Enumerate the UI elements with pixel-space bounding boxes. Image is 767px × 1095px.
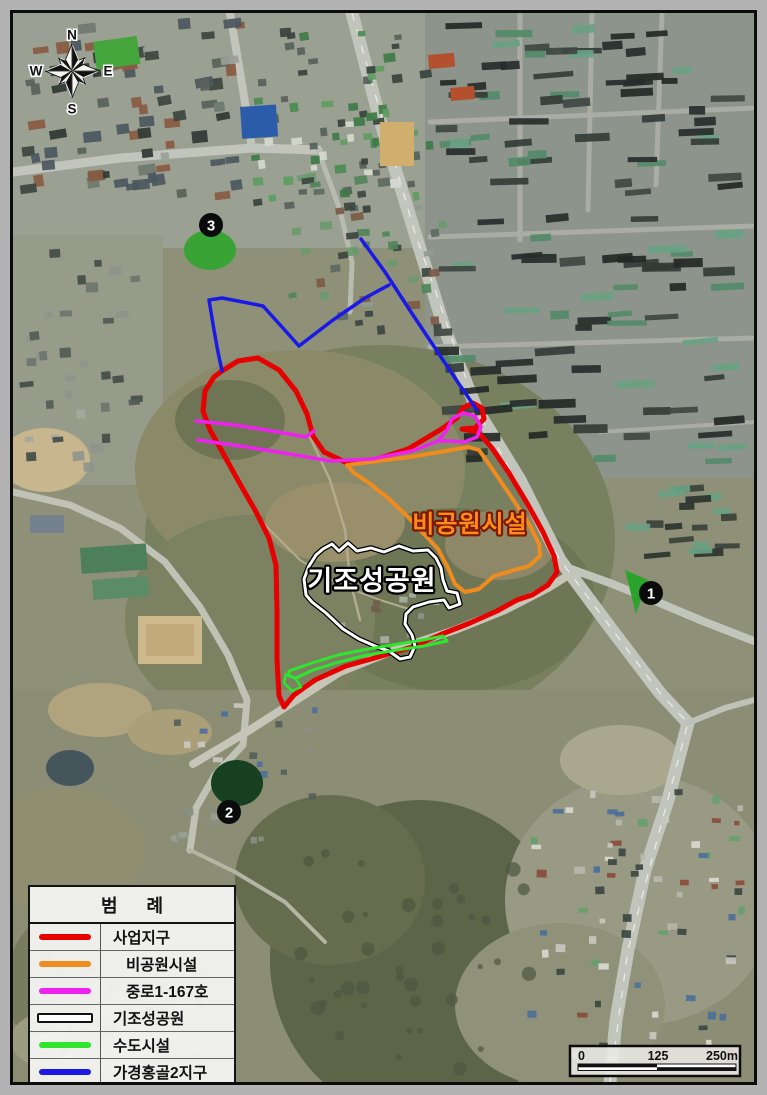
legend-row-5: 가경홍골2지구 <box>30 1059 234 1085</box>
compass-letter: E <box>103 64 112 79</box>
legend-row-1: 비공원시설 <box>30 951 234 978</box>
legend-swatch-cell <box>30 951 101 977</box>
legend-swatch-5 <box>39 1069 91 1075</box>
map-label-existing-park: 기조성공원 <box>307 566 436 596</box>
legend-swatch-4 <box>39 1042 91 1048</box>
map-frame: 비공원시설기조성공원123NESW0125250m 범 례 사업지구비공원시설중… <box>10 10 757 1085</box>
legend-label-5: 가경홍골2지구 <box>101 1059 207 1085</box>
legend-row-2: 중로1-167호 <box>30 978 234 1005</box>
legend-rows: 사업지구비공원시설중로1-167호기조성공원수도시설가경홍골2지구 <box>30 924 234 1085</box>
legend-swatch-1 <box>39 961 91 967</box>
legend-swatch-cell <box>30 1059 101 1085</box>
legend-row-3: 기조성공원 <box>30 1005 234 1032</box>
legend-swatch-cell <box>30 924 101 950</box>
scale-label-end: 250m <box>706 1049 738 1063</box>
legend-label-0: 사업지구 <box>101 924 170 950</box>
compass-letter: W <box>30 64 43 79</box>
legend-swatch-cell <box>30 1032 101 1058</box>
legend-row-0: 사업지구 <box>30 924 234 951</box>
compass-letter: N <box>67 28 77 43</box>
legend-title: 범 례 <box>30 887 234 924</box>
legend-label-4: 수도시설 <box>101 1032 170 1058</box>
page: 비공원시설기조성공원123NESW0125250m 범 례 사업지구비공원시설중… <box>0 0 767 1095</box>
legend-swatch-0 <box>39 934 91 940</box>
scale-bar: 0125250m <box>570 1046 740 1076</box>
scale-label-mid: 125 <box>648 1049 669 1063</box>
legend-swatch-2 <box>39 988 91 994</box>
legend-swatch-cell <box>30 1005 101 1031</box>
map-marker-2: 2 <box>217 800 241 824</box>
legend-swatch-cell <box>30 978 101 1004</box>
map-marker-number: 1 <box>647 586 655 603</box>
legend-swatch-3 <box>37 1013 93 1023</box>
map-marker-1: 1 <box>639 581 663 605</box>
map-label-nonpark-facility: 비공원시설 <box>412 511 527 538</box>
map-marker-3: 3 <box>199 213 223 237</box>
compass-letter: S <box>67 102 76 117</box>
map-marker-number: 3 <box>207 218 215 235</box>
legend-label-3: 기조성공원 <box>101 1005 184 1031</box>
legend-label-2: 중로1-167호 <box>101 978 208 1004</box>
legend-label-1: 비공원시설 <box>101 951 197 977</box>
map-marker-number: 2 <box>225 805 233 822</box>
legend-row-4: 수도시설 <box>30 1032 234 1059</box>
scale-label-0: 0 <box>578 1049 585 1063</box>
legend: 범 례 사업지구비공원시설중로1-167호기조성공원수도시설가경홍골2지구 <box>28 885 236 1085</box>
